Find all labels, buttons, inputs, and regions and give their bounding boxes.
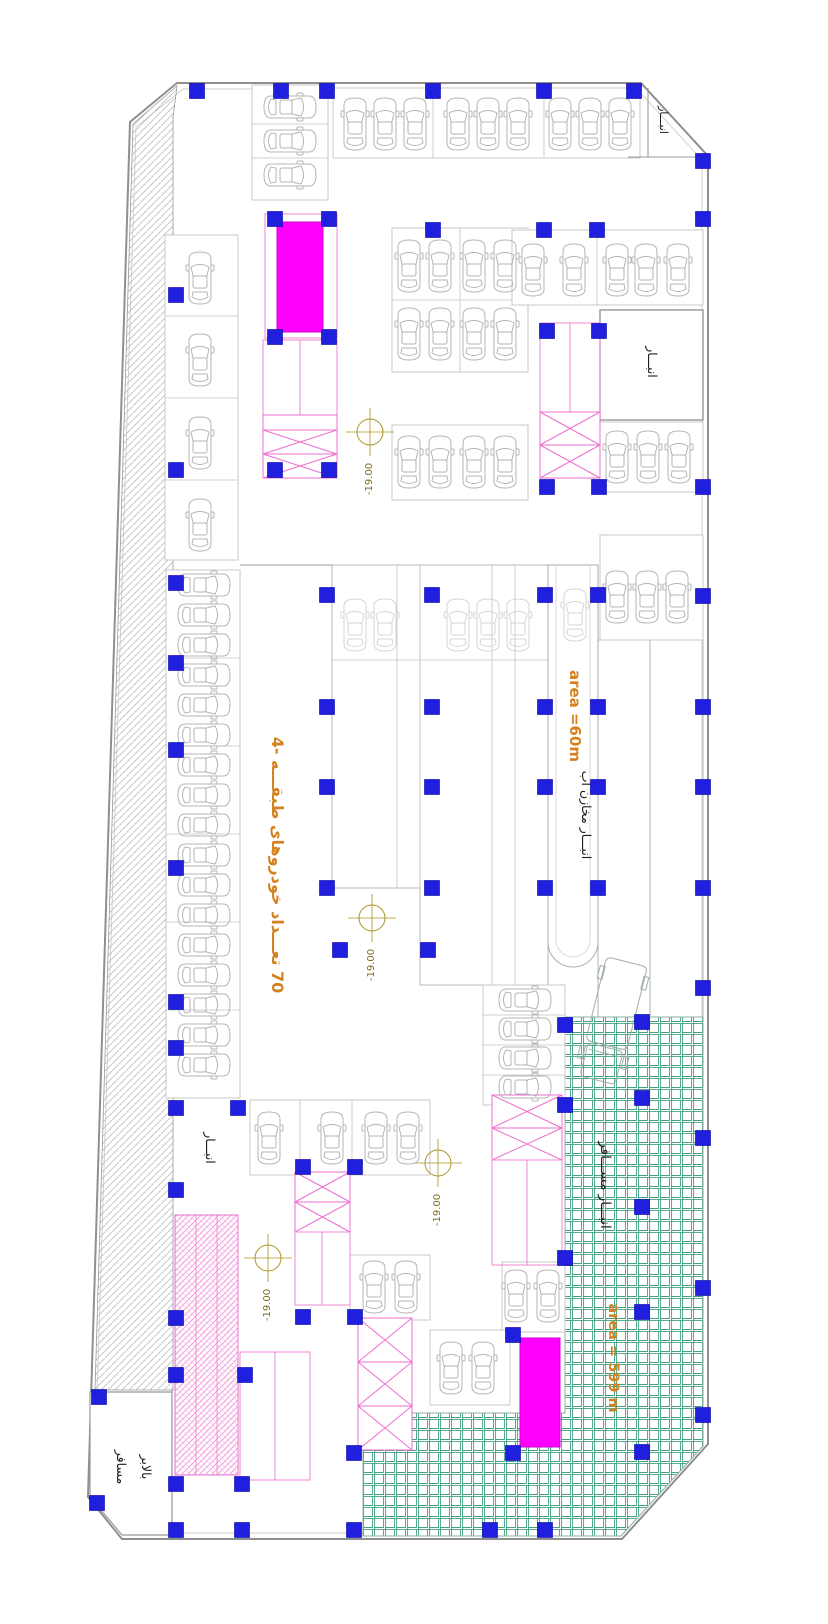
column: [696, 589, 711, 604]
column: [540, 480, 555, 495]
column: [169, 576, 184, 591]
column: [347, 1446, 362, 1461]
column: [322, 330, 337, 345]
column: [696, 881, 711, 896]
label-storage-green: انبـــار مســـافر: [597, 1140, 613, 1229]
level-value: -19.00: [432, 1194, 443, 1226]
column: [635, 1091, 650, 1106]
column: [268, 330, 283, 345]
column: [696, 1281, 711, 1296]
column: [320, 881, 335, 896]
elevator-shaft-bottom: [520, 1338, 560, 1447]
column: [296, 1310, 311, 1325]
label-storage-right: انبـــار: [644, 345, 660, 378]
elevator-shaft-top: [277, 222, 323, 332]
column: [333, 943, 348, 958]
column: [696, 981, 711, 996]
column: [696, 480, 711, 495]
column: [538, 881, 553, 896]
column: [696, 154, 711, 169]
column: [169, 1311, 184, 1326]
column: [538, 780, 553, 795]
column: [320, 700, 335, 715]
column: [627, 84, 642, 99]
column: [169, 656, 184, 671]
level-value: -19.00: [262, 1289, 273, 1321]
column: [320, 588, 335, 603]
column: [322, 463, 337, 478]
column: [591, 588, 606, 603]
label-car-count: 70 تعـــداد خودروهای طبقـــه -4: [268, 737, 287, 994]
column: [483, 1523, 498, 1538]
level-value: -19.00: [364, 463, 375, 495]
column: [592, 480, 607, 495]
column: [235, 1523, 250, 1538]
column: [506, 1446, 521, 1461]
column: [591, 700, 606, 715]
column: [322, 212, 337, 227]
column: [635, 1445, 650, 1460]
column: [238, 1368, 253, 1383]
label-lift-word-2: مسافر: [113, 1449, 129, 1485]
column: [425, 700, 440, 715]
label-lift-word-1: بالابر: [138, 1454, 154, 1480]
column: [268, 463, 283, 478]
column: [558, 1251, 573, 1266]
column: [348, 1310, 363, 1325]
column: [696, 700, 711, 715]
level-value: -19.00: [366, 949, 377, 981]
column: [92, 1390, 107, 1405]
column: [169, 1523, 184, 1538]
column: [696, 780, 711, 795]
column: [425, 780, 440, 795]
column: [169, 1101, 184, 1116]
column: [169, 463, 184, 478]
column: [320, 84, 335, 99]
column: [169, 743, 184, 758]
column: [190, 84, 205, 99]
column: [235, 1477, 250, 1492]
column: [169, 1477, 184, 1492]
column: [696, 1408, 711, 1423]
column: [296, 1160, 311, 1175]
column: [274, 84, 289, 99]
column: [592, 324, 607, 339]
label-storage-top-right: انبـــار: [657, 105, 670, 134]
column: [537, 84, 552, 99]
floor-plan-drawing: انبـــار انبـــار انبـــار area =60m انب…: [0, 0, 828, 1624]
column: [426, 223, 441, 238]
column: [169, 1183, 184, 1198]
column: [426, 84, 441, 99]
ramp-x-column: [358, 1318, 412, 1450]
column: [540, 324, 555, 339]
column: [169, 288, 184, 303]
column: [347, 1523, 362, 1538]
label-area-60: area =60m: [566, 670, 584, 762]
column: [537, 223, 552, 238]
column: [635, 1015, 650, 1030]
column: [169, 1041, 184, 1056]
column: [169, 995, 184, 1010]
column: [231, 1101, 246, 1116]
column: [538, 588, 553, 603]
column: [425, 881, 440, 896]
column: [558, 1098, 573, 1113]
column: [320, 780, 335, 795]
column: [591, 881, 606, 896]
column: [538, 1523, 553, 1538]
column: [635, 1200, 650, 1215]
column: [506, 1328, 521, 1343]
column: [591, 780, 606, 795]
column: [348, 1160, 363, 1175]
column: [696, 1131, 711, 1146]
column: [590, 223, 605, 238]
column: [169, 861, 184, 876]
column: [558, 1018, 573, 1033]
vehicle-ramp-crosshatch: [175, 1215, 238, 1475]
label-storage-left: انبـــار: [202, 1131, 218, 1164]
column: [421, 943, 436, 958]
label-area-599: area = 599 m: [605, 1303, 621, 1412]
column: [90, 1496, 105, 1511]
floor-plan-canvas: انبـــار انبـــار انبـــار area =60m انب…: [0, 0, 828, 1624]
column: [425, 588, 440, 603]
column: [538, 700, 553, 715]
column: [268, 212, 283, 227]
column: [169, 1368, 184, 1383]
column: [696, 212, 711, 227]
column: [635, 1305, 650, 1320]
